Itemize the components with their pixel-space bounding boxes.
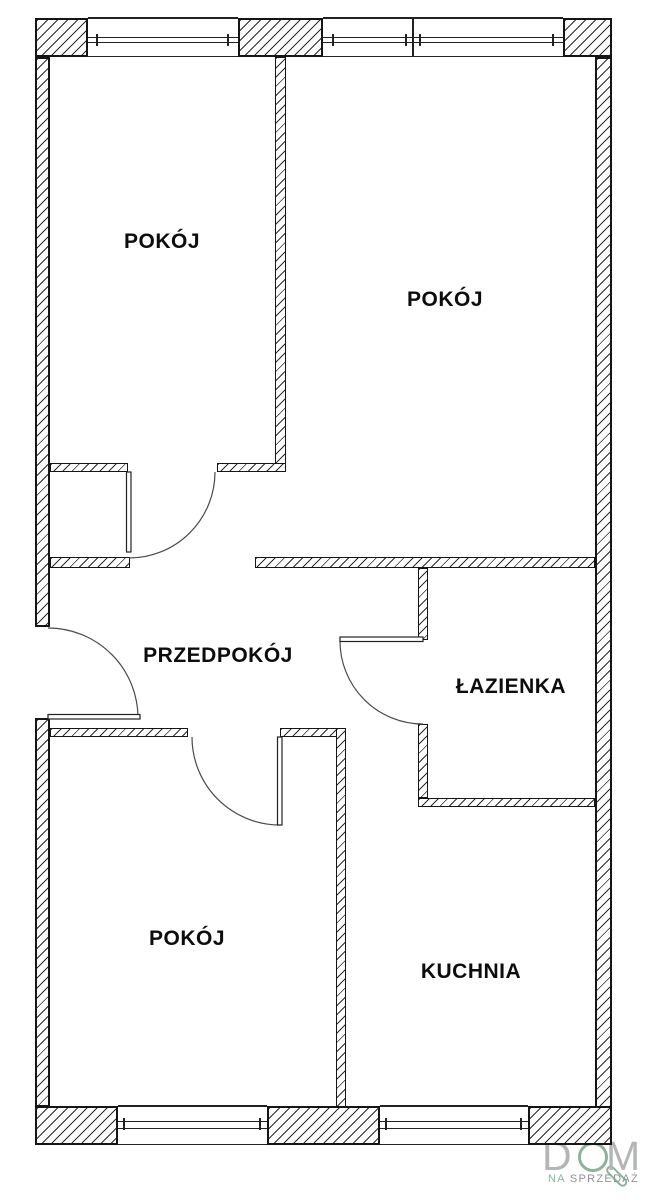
door-symbols-layer [0, 0, 651, 1200]
room-label-pokoj-top-right: POKÓJ [407, 288, 483, 312]
door-arc-top-left-room [129, 472, 215, 558]
room-label-kuchnia: KUCHNIA [421, 960, 521, 984]
floor-plan: D M NASPRZEDAŻ [0, 0, 651, 1200]
door-leaf-bathroom [340, 637, 423, 642]
room-label-przedpokoj: PRZEDPOKÓJ [143, 644, 293, 668]
door-arc-bathroom [340, 641, 423, 724]
door-leaf-top-left-room [127, 472, 132, 552]
room-label-pokoj-top-left: POKÓJ [124, 230, 200, 254]
room-label-lazienka: ŁAZIENKA [456, 675, 566, 699]
door-leaf-entrance [48, 715, 140, 720]
door-arc-entrance [48, 628, 138, 718]
room-label-pokoj-bottom-left: POKÓJ [149, 927, 225, 951]
door-arc-bottom-left-room [192, 737, 280, 825]
door-leaf-bottom-left-room [278, 737, 283, 825]
